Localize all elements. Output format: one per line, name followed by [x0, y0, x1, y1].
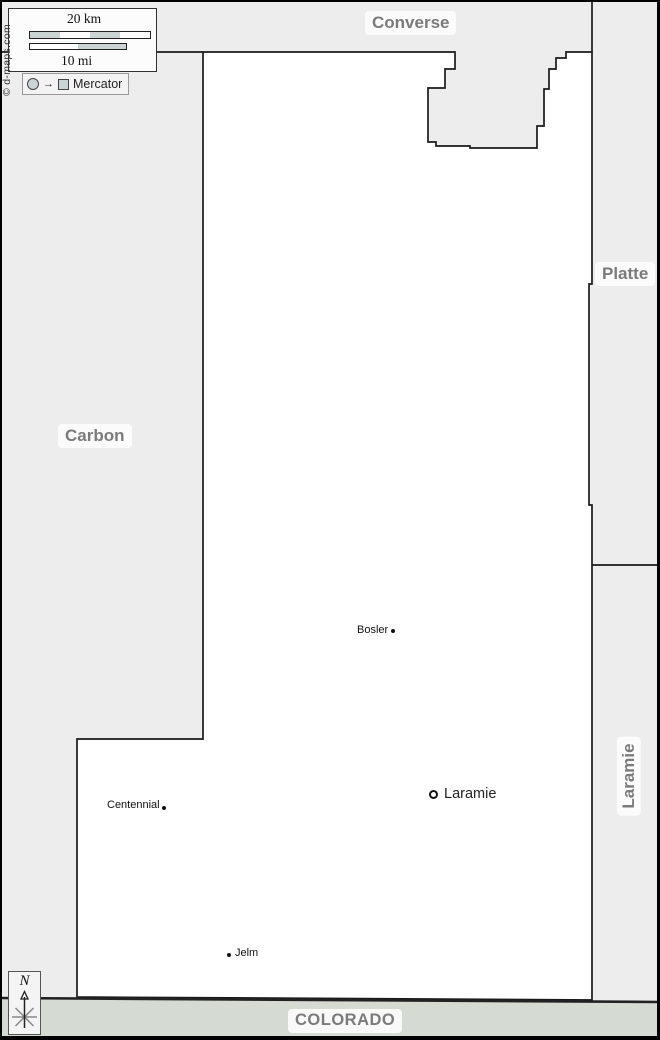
projection-badge: → Mercator [22, 73, 129, 95]
compass-rose: N [8, 971, 41, 1035]
city-label-bosler: Bosler [357, 624, 388, 636]
label-carbon-county: Carbon [58, 424, 132, 448]
scale-segment [30, 32, 60, 38]
scale-segment [60, 32, 90, 38]
plane-icon [58, 79, 69, 90]
arrow-right-icon: → [43, 79, 54, 90]
sphere-icon [27, 78, 39, 90]
county-map-canvas [0, 0, 660, 1040]
copyright-watermark: © d-maps.com [1, 24, 13, 96]
scale-segment [90, 32, 120, 38]
scale-segment [30, 44, 78, 49]
city-label-jelm: Jelm [235, 947, 258, 959]
label-converse-county: Converse [365, 11, 456, 35]
scale-km-label: 20 km [67, 11, 101, 27]
scale-mi-label: 10 mi [61, 53, 92, 69]
city-marker-laramie [429, 790, 438, 799]
scale-bar-mi [29, 43, 127, 50]
projection-name: Mercator [73, 77, 122, 91]
label-laramie-county: Laramie [617, 736, 641, 815]
city-label-centennial: Centennial [107, 799, 160, 811]
label-colorado-state: COLORADO [288, 1009, 402, 1033]
label-platte-county: Platte [595, 262, 655, 286]
scale-segment [120, 32, 150, 38]
compass-north-label: N [9, 973, 40, 990]
city-marker-jelm [227, 953, 231, 957]
compass-star-icon [9, 990, 40, 1032]
city-label-laramie: Laramie [444, 786, 496, 802]
scale-bar-km [29, 31, 151, 39]
city-marker-bosler [391, 629, 395, 633]
scale-segment [78, 44, 126, 49]
city-marker-centennial [162, 806, 166, 810]
scale-bar-box: 20 km 10 mi [8, 8, 157, 72]
